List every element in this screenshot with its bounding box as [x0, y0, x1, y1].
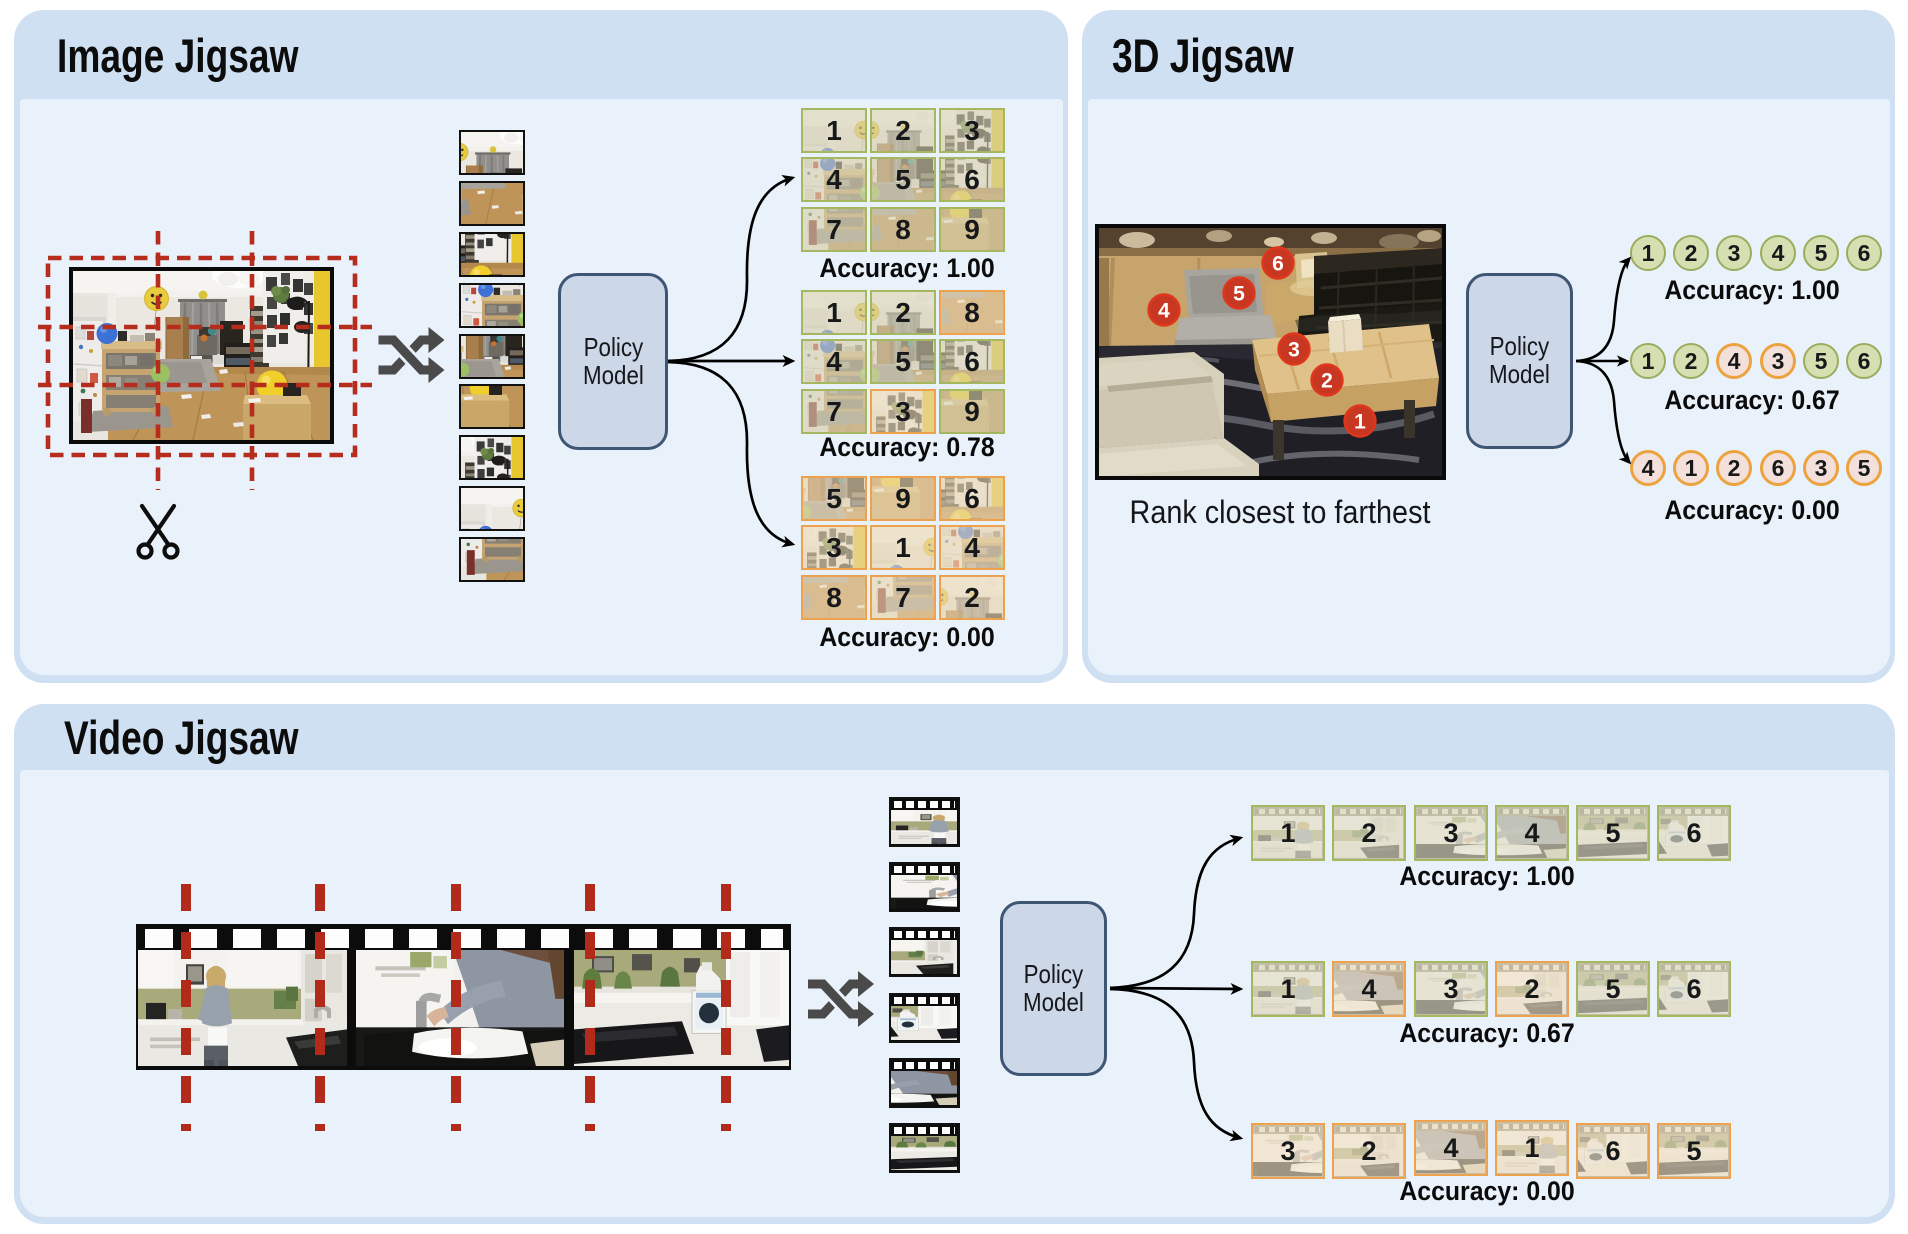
svg-text:6: 6: [1272, 253, 1284, 276]
svg-text:3: 3: [1288, 339, 1300, 362]
svg-text:4: 4: [1158, 300, 1170, 323]
svg-text:2: 2: [1321, 370, 1333, 393]
svg-text:5: 5: [1233, 283, 1245, 306]
svg-text:1: 1: [1354, 411, 1366, 434]
